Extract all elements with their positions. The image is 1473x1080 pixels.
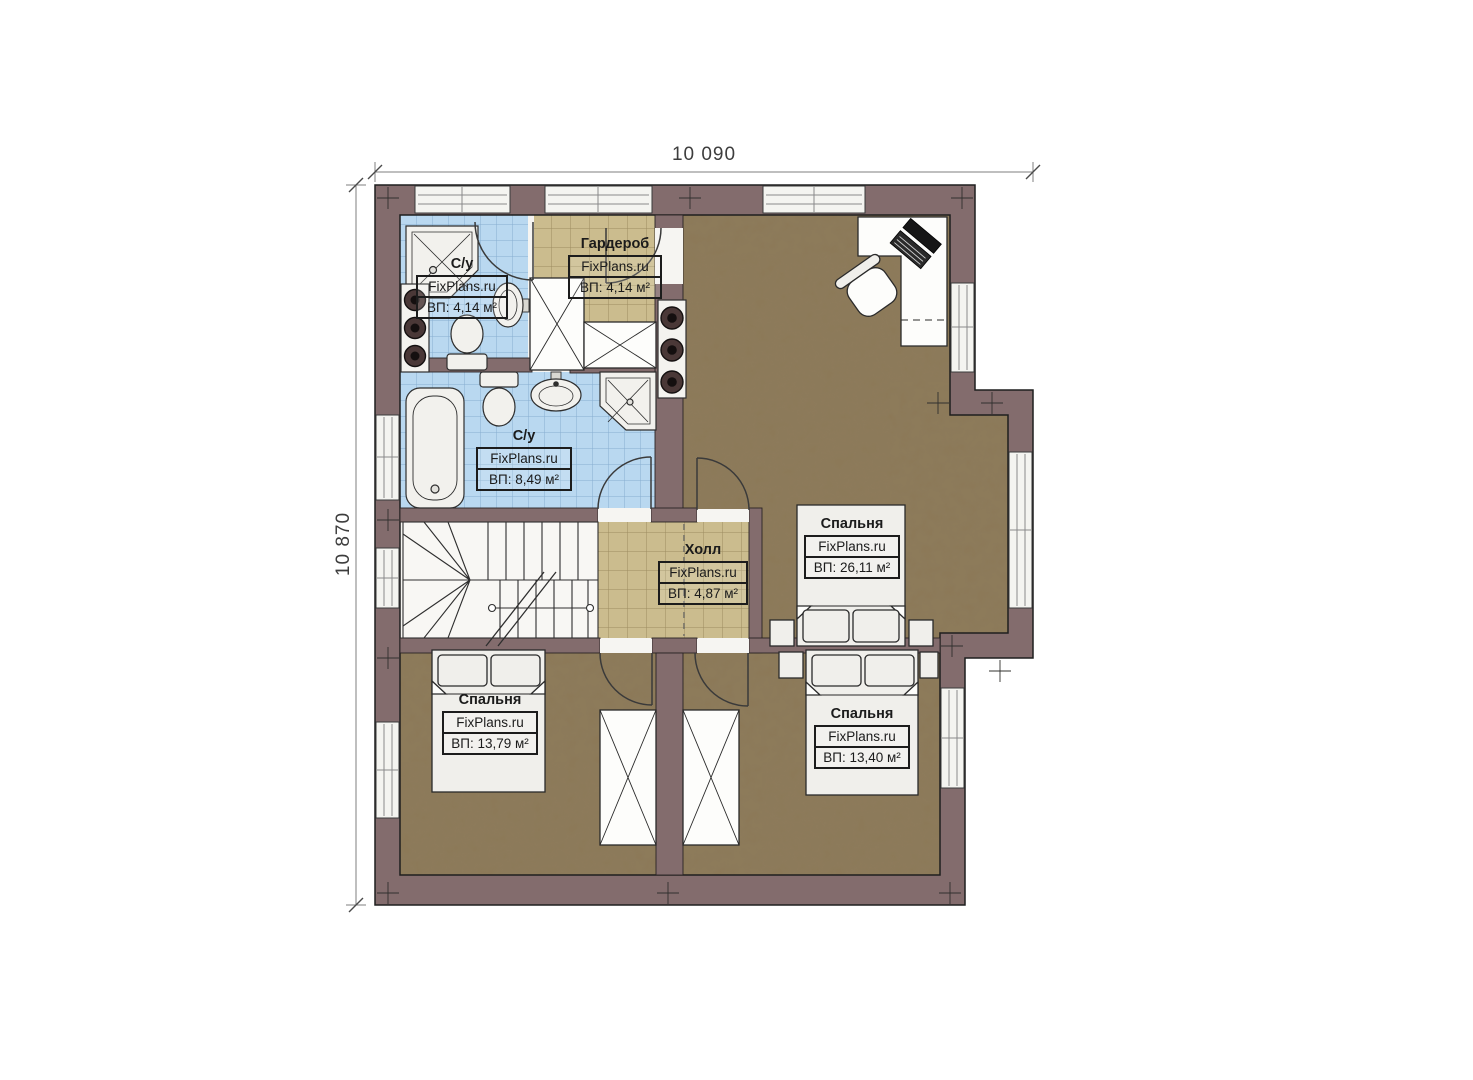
staircase [403,522,598,646]
window [941,688,964,788]
utility-stack [658,300,686,398]
window [1009,452,1032,608]
door-threshold [655,228,683,284]
door-threshold [598,509,651,522]
partition-wall [749,508,762,653]
shower-corner [600,372,656,430]
toilet [480,372,518,426]
wardrobe [600,710,656,845]
bathtub [406,388,464,508]
cabinet [530,278,584,370]
dimension-width-label: 10 090 [375,144,1033,166]
floor-plan-page: 10 090 10 870 С/у FixPlans.ru ВП: 4,14 м… [0,0,1473,1080]
partition-wall [652,638,697,653]
dimension-height-label: 10 870 [333,484,355,604]
cabinet [584,322,656,368]
wardrobe [683,710,739,845]
partition-wall [400,508,598,522]
door-threshold [697,509,749,522]
hall-floor [598,522,749,638]
partition-wall [656,653,683,875]
bed [432,650,545,792]
door-threshold [600,639,652,653]
partition-wall [651,508,697,522]
window [376,548,399,608]
window [545,186,652,213]
window [376,415,399,500]
window [763,186,865,213]
utility-stack [401,284,429,372]
window [376,722,399,818]
window [951,283,974,372]
door-threshold [697,639,749,653]
window [415,186,510,213]
